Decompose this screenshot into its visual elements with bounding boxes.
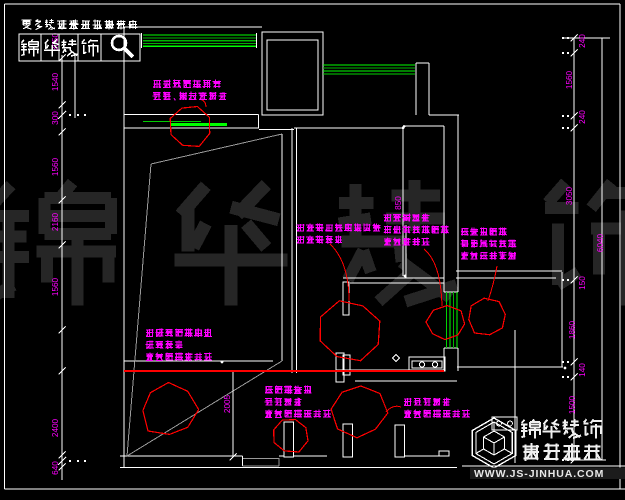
- svg-text:1860: 1860: [568, 320, 577, 339]
- svg-text:2400: 2400: [51, 418, 60, 437]
- svg-text:2160: 2160: [51, 212, 60, 231]
- svg-text:240: 240: [578, 110, 587, 124]
- svg-text:300: 300: [51, 111, 60, 125]
- svg-text:850: 850: [394, 196, 403, 210]
- svg-text:1560: 1560: [51, 277, 60, 296]
- svg-text:6040: 6040: [596, 233, 605, 252]
- svg-text:3050: 3050: [565, 186, 574, 205]
- svg-text:240: 240: [578, 34, 587, 48]
- svg-text:140: 140: [578, 363, 587, 377]
- svg-text:150: 150: [578, 276, 587, 290]
- svg-text:1560: 1560: [565, 70, 574, 89]
- svg-text:640: 640: [51, 461, 60, 475]
- svg-text:1560: 1560: [51, 157, 60, 176]
- svg-text:1500: 1500: [568, 395, 577, 414]
- svg-text:1540: 1540: [51, 72, 60, 91]
- svg-text:2005: 2005: [223, 394, 232, 413]
- svg-text:WWW.JS-JINHUA.COM: WWW.JS-JINHUA.COM: [474, 468, 604, 480]
